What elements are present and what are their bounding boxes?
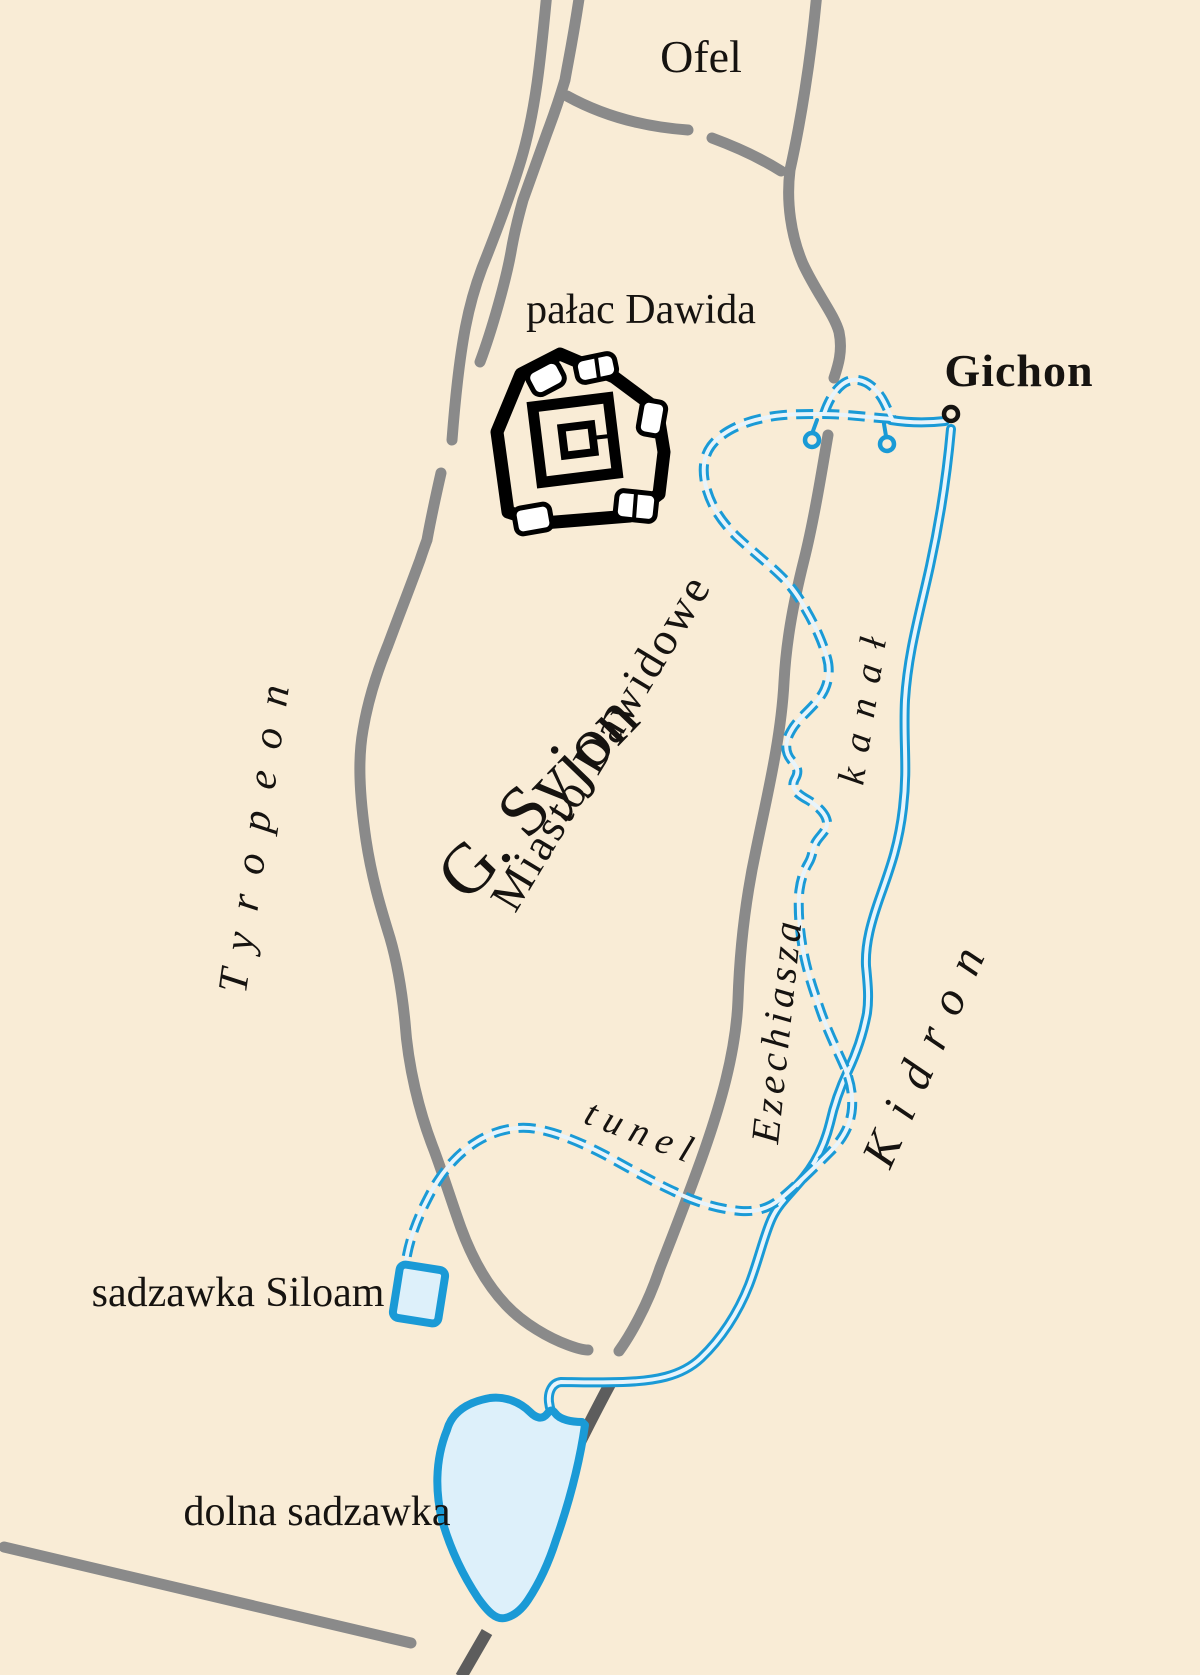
jerusalem-city-of-david-map: Ofel pałac Dawida Gichon G. Syjon Miasto… [0,0,1200,1675]
label-ofel: Ofel [660,34,742,80]
label-palac-dawida: pałac Dawida [526,289,756,331]
city-walls [4,0,840,1643]
tunnel-stub-east [884,424,886,436]
fortress-keep-link [592,436,610,438]
fortress-tower-sw [513,503,553,535]
map-canvas [0,0,1200,1675]
label-dolna-sadzawka: dolna sadzawka [183,1491,450,1533]
fortress-tower-se-divider [634,493,636,519]
gichon-spring-icon [944,407,958,421]
canal-kanal [549,420,951,1419]
tunnel-shaft-west-icon [805,433,819,447]
lower-pool-icon [437,1398,585,1619]
southwest-long-wall [4,1547,411,1643]
dark-wall-tail [461,1632,487,1675]
label-sadzawka-siloam: sadzawka Siloam [92,1272,385,1314]
east-wall-upper [789,0,841,378]
tunnel-shaft-east-icon [880,437,894,451]
fortress-keep [533,398,618,483]
siloam-pool-icon [392,1264,446,1325]
fortress-keep-inner [561,424,594,455]
north-wall-west-segment [567,96,688,130]
fortress-tower-e [637,399,667,437]
tunnel-stub-west [813,420,817,431]
canal-main-casing [549,429,951,1419]
label-gichon: Gichon [944,348,1093,394]
palace-fortress-icon [497,352,667,535]
pools [392,1264,585,1619]
north-wall-east-segment [712,138,781,171]
